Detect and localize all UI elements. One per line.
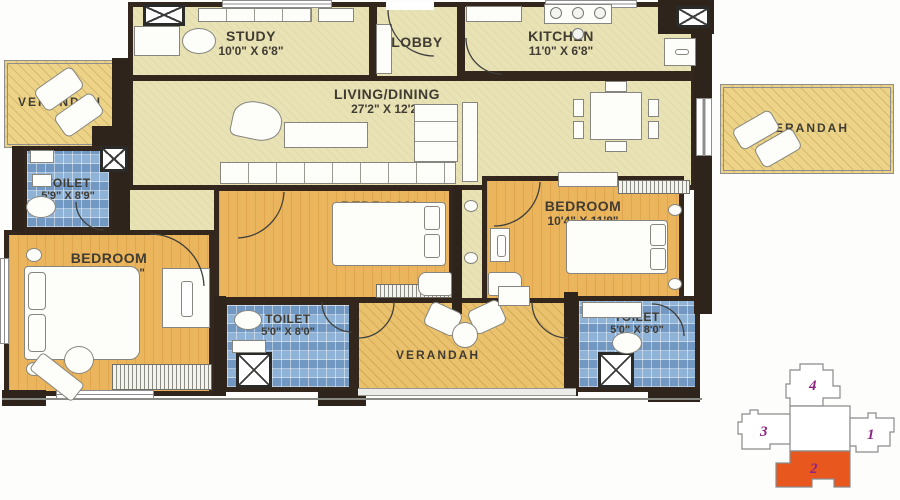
- wc-icon: [612, 332, 642, 354]
- table-icon: [318, 8, 354, 22]
- wall-right-spine: [694, 0, 712, 314]
- room-dim: 11'0" X 6'8": [465, 45, 657, 58]
- wardrobe-icon: [618, 180, 690, 194]
- coffee-table-icon: [284, 122, 368, 148]
- floor-plan: STUDY 10'0" X 6'8" LOBBY KITCHEN 11'0" X…: [0, 0, 900, 500]
- pillow-icon: [650, 248, 666, 270]
- sideboard-icon: [558, 172, 618, 187]
- keyplan-core: [790, 406, 850, 451]
- dresser-icon: [490, 228, 510, 262]
- keyplan-unit-2-label: 2: [809, 461, 818, 477]
- shaft-x-icon: [143, 4, 185, 26]
- tv-unit-icon: [462, 102, 478, 182]
- nightstand-icon: [464, 200, 478, 212]
- dining-table-icon: [590, 92, 642, 140]
- room-label: VERANDAH: [359, 349, 517, 362]
- geyser-icon: [32, 174, 52, 187]
- sink-counter-icon: [582, 302, 642, 318]
- console-icon: [376, 24, 392, 74]
- window-study: [222, 0, 332, 8]
- shaft-x-icon: [598, 352, 634, 388]
- dresser-icon: [162, 268, 210, 328]
- nightstand-icon: [464, 252, 478, 264]
- verandah-railing: [358, 388, 576, 396]
- nightstand-icon: [668, 204, 682, 216]
- key-plan: 4 3 1 2: [730, 356, 900, 500]
- nightstand-icon: [668, 278, 682, 290]
- sink-icon: [30, 150, 54, 163]
- keyplan-unit-4-label: 4: [808, 378, 817, 394]
- dining-chair-icon: [573, 99, 584, 117]
- opening-verandah-right: [696, 98, 712, 156]
- wardrobe-icon: [112, 364, 212, 390]
- wall-toilet-left-side: [12, 146, 24, 232]
- wc-icon: [234, 310, 262, 330]
- room-label: LIVING/DINING: [133, 87, 641, 103]
- pillow-icon: [424, 234, 440, 258]
- pillow-icon: [650, 224, 666, 246]
- entry-opening: [386, 2, 434, 10]
- chair-icon: [182, 28, 216, 54]
- nightstand-icon: [26, 248, 42, 262]
- bench-icon: [498, 286, 530, 306]
- armchair-icon: [418, 272, 452, 296]
- stool-icon: [64, 346, 94, 374]
- window-bedroom-left: [0, 258, 9, 344]
- wall-bottom-1: [214, 296, 226, 396]
- keyplan-unit-1-label: 1: [867, 427, 875, 443]
- shaft-x-icon: [676, 6, 710, 28]
- patio-table-icon: [452, 322, 478, 348]
- room-label: KITCHEN: [465, 29, 657, 45]
- wall-mid-passage: [452, 186, 462, 314]
- dining-chair-icon: [573, 121, 584, 139]
- dining-chair-icon: [605, 81, 627, 92]
- sink-icon: [232, 340, 266, 353]
- pillow-icon: [28, 272, 46, 310]
- dining-chair-icon: [648, 99, 659, 117]
- kitchen-counter-icon: [466, 6, 522, 22]
- wall-toilet-left-top: [92, 126, 132, 146]
- shaft-x-icon: [236, 352, 272, 388]
- hob-icon: [544, 4, 612, 24]
- sofa-icon: [414, 104, 458, 162]
- dining-chair-icon: [605, 141, 627, 152]
- dining-chair-icon: [648, 121, 659, 139]
- wc-icon: [26, 196, 56, 218]
- wall-bottom-2: [564, 292, 578, 396]
- sofa-icon: [198, 8, 312, 22]
- keyplan-unit-3-label: 3: [759, 424, 768, 440]
- shaft-x-icon: [100, 146, 128, 172]
- desk-icon: [134, 26, 180, 56]
- pillow-icon: [424, 206, 440, 230]
- fridge-icon: [664, 38, 696, 66]
- sofa-icon: [220, 162, 456, 184]
- room-dim: 27'2" X 12'2": [133, 103, 641, 116]
- room-label: BEDROOM: [487, 199, 679, 215]
- pillow-icon: [28, 314, 46, 352]
